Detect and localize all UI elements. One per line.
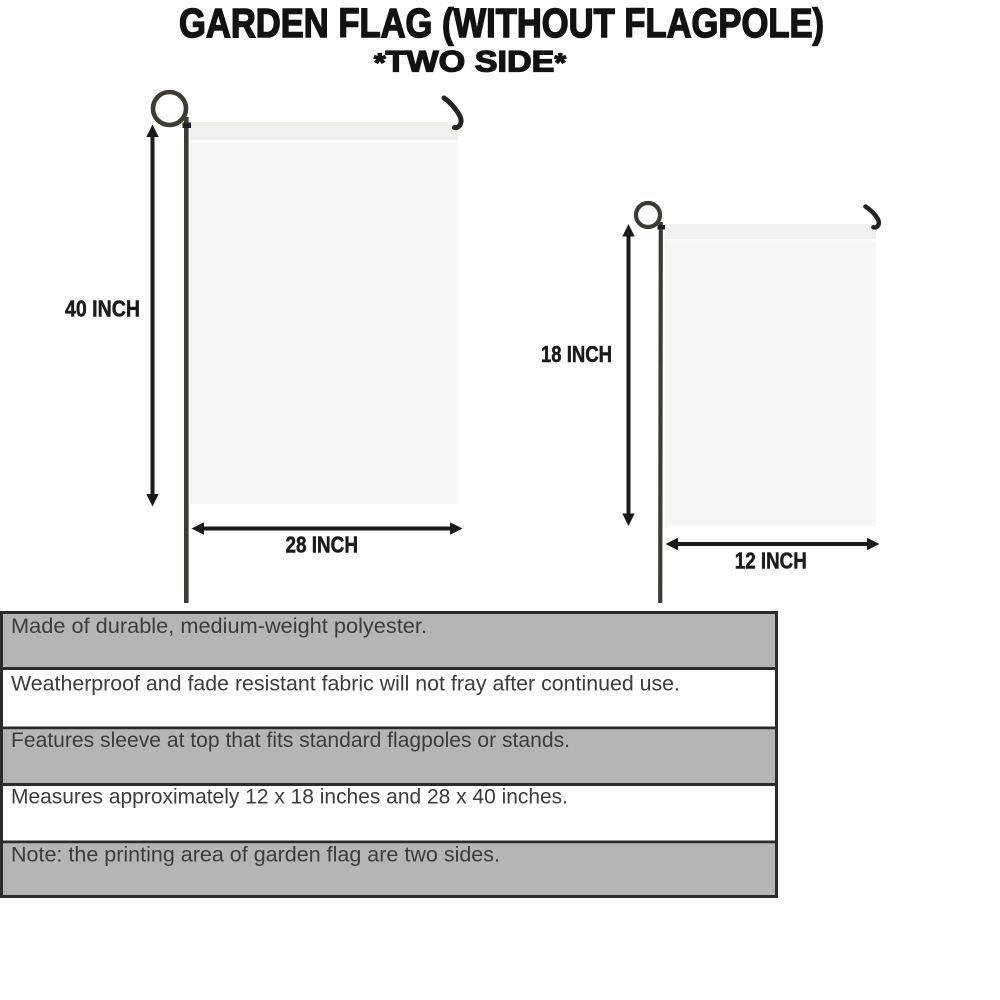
svg-text:Features sleeve at top that fi: Features sleeve at top that fits standar… (11, 729, 570, 752)
svg-text:Measures approximately 12 x 18: Measures approximately 12 x 18 inches an… (11, 786, 568, 809)
svg-text:12 INCH: 12 INCH (735, 548, 807, 574)
svg-text:Note: the printing area of gar: Note: the printing area of garden flag a… (11, 844, 500, 867)
svg-text:*TWO SIDE*: *TWO SIDE* (374, 46, 567, 79)
svg-text:28 INCH: 28 INCH (286, 532, 359, 558)
svg-text:40 INCH: 40 INCH (65, 296, 140, 322)
svg-text:Weatherproof and fade resistan: Weatherproof and fade resistant fabric w… (11, 673, 680, 696)
svg-text:GARDEN FLAG (WITHOUT FLAGPOLE): GARDEN FLAG (WITHOUT FLAGPOLE) (179, 0, 824, 46)
svg-text:18 INCH: 18 INCH (541, 341, 612, 367)
svg-text:Made of durable, medium-weight: Made of durable, medium-weight polyester… (11, 615, 427, 638)
